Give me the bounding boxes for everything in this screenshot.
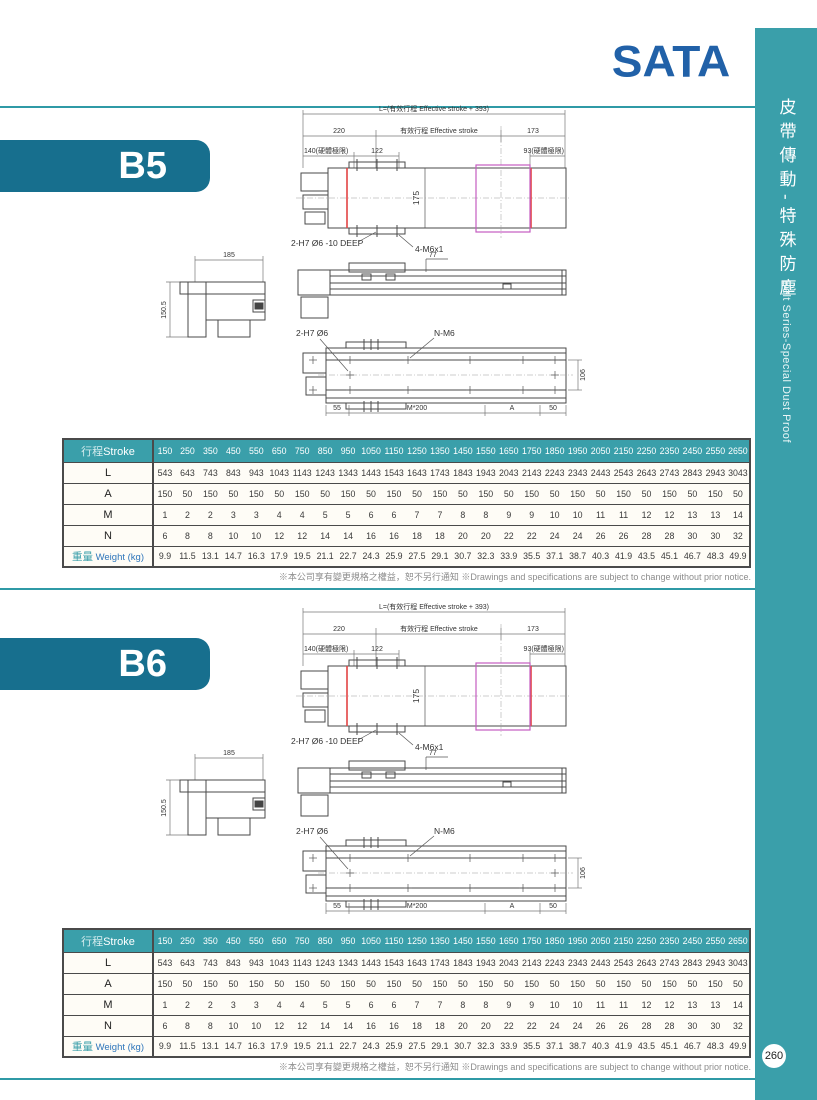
spec-value-cell: 1043 xyxy=(268,462,291,483)
spec-value-cell: 150 xyxy=(704,483,727,504)
spec-value-cell: 50 xyxy=(405,483,428,504)
spec-value-cell: 2 xyxy=(199,504,222,525)
page-number: 260 xyxy=(765,1050,783,1062)
spec-value-cell: 40.3 xyxy=(589,1036,612,1057)
spec-value-cell: 11 xyxy=(612,504,635,525)
spec-value-cell: 37.1 xyxy=(543,546,566,567)
spec-value-cell: 8 xyxy=(451,504,474,525)
row-label: M xyxy=(63,994,153,1015)
spec-value-cell: 8 xyxy=(199,1015,222,1036)
dim-label-50: 50 xyxy=(549,903,557,910)
dim-label-185: 185 xyxy=(223,750,235,757)
dim-label-effective-stroke: 有效行程 Effective stroke xyxy=(400,624,478,633)
stroke-value-cell: 1050 xyxy=(360,439,383,462)
spec-value-cell: 18 xyxy=(405,1015,428,1036)
spec-value-cell: 5 xyxy=(314,994,337,1015)
spec-value-cell: 50 xyxy=(681,973,704,994)
row-label: 重量 Weight (kg) xyxy=(63,546,153,567)
spec-value-cell: 8 xyxy=(451,994,474,1015)
stroke-header-label: 行程Stroke xyxy=(63,929,153,952)
spec-value-cell: 150 xyxy=(658,483,681,504)
stroke-header-label: 行程Stroke xyxy=(63,439,153,462)
spec-value-cell: 150 xyxy=(612,483,635,504)
dim-label-A: A xyxy=(510,405,515,412)
spec-value-cell: 1243 xyxy=(314,462,337,483)
spec-value-cell: 12 xyxy=(635,504,658,525)
spec-value-cell: 150 xyxy=(474,483,497,504)
spec-value-cell: 50 xyxy=(360,483,383,504)
spec-value-cell: 150 xyxy=(199,483,222,504)
spec-value-cell: 4 xyxy=(291,504,314,525)
spec-value-cell: 16.3 xyxy=(245,546,268,567)
row-label: A xyxy=(63,973,153,994)
spec-value-cell: 33.9 xyxy=(497,1036,520,1057)
bottom-view-annotations: 2-H7 Ø6 N-M6 106 xyxy=(296,328,587,390)
spec-value-cell: 6 xyxy=(383,504,406,525)
spec-value-cell: 2243 xyxy=(543,462,566,483)
stroke-value-cell: 1650 xyxy=(497,929,520,952)
spec-value-cell: 50 xyxy=(543,483,566,504)
spec-value-cell: 17.9 xyxy=(268,546,291,567)
dim-label-effective-stroke: 有效行程 Effective stroke xyxy=(400,126,478,135)
dim-label-55: 55 xyxy=(333,405,341,412)
top-view-dimensions: L=(有效行程 Effective stroke + 393) 220 有效行程… xyxy=(303,104,565,168)
dim-label-93: 93(硬體極限) xyxy=(524,644,564,653)
spec-value-cell: 16 xyxy=(383,525,406,546)
spec-value-cell: 50 xyxy=(727,973,750,994)
spec-value-cell: 1043 xyxy=(268,952,291,973)
spec-value-cell: 16 xyxy=(360,525,383,546)
spec-value-cell: 150 xyxy=(199,973,222,994)
spec-value-cell: 32.3 xyxy=(474,546,497,567)
dim-label-106: 106 xyxy=(580,867,587,879)
stroke-value-cell: 1650 xyxy=(497,439,520,462)
spec-value-cell: 543 xyxy=(153,462,176,483)
spec-value-cell: 150 xyxy=(337,973,360,994)
spec-value-cell: 150 xyxy=(337,483,360,504)
stroke-value-cell: 750 xyxy=(291,439,314,462)
spec-value-cell: 2043 xyxy=(497,952,520,973)
spec-row: 重量 Weight (kg)9.911.513.114.716.317.919.… xyxy=(63,546,750,567)
spec-value-cell: 2943 xyxy=(704,462,727,483)
dim-label-175: 175 xyxy=(411,191,421,205)
top-view-annotations: 2-H7 Ø6 -10 DEEP 4-M6x1 77 xyxy=(291,730,448,770)
top-view-annotations: 2-H7 Ø6 -10 DEEP 4-M6x1 77 xyxy=(291,232,448,272)
spec-value-cell: 150 xyxy=(291,483,314,504)
dim-label-93: 93(硬體極限) xyxy=(524,146,564,155)
spec-value-cell: 3 xyxy=(245,504,268,525)
stroke-label-en: Stroke xyxy=(103,446,135,458)
spec-value-cell: 22.7 xyxy=(337,546,360,567)
spec-row: 重量 Weight (kg)9.911.513.114.716.317.919.… xyxy=(63,1036,750,1057)
spec-value-cell: 16 xyxy=(360,1015,383,1036)
spec-value-cell: 30 xyxy=(681,1015,704,1036)
spec-value-cell: 150 xyxy=(658,973,681,994)
spec-value-cell: 9 xyxy=(497,994,520,1015)
spec-value-cell: 10 xyxy=(222,525,245,546)
spec-row: M12233445566778899101011111212131314 xyxy=(63,504,750,525)
spec-value-cell: 27.5 xyxy=(405,546,428,567)
stroke-value-cell: 2350 xyxy=(658,439,681,462)
spec-value-cell: 150 xyxy=(153,973,176,994)
spec-value-cell: 9 xyxy=(497,504,520,525)
spec-row: L543643743843943104311431243134314431543… xyxy=(63,952,750,973)
spec-value-cell: 150 xyxy=(383,483,406,504)
spec-value-cell: 7 xyxy=(428,994,451,1015)
spec-value-cell: 3 xyxy=(245,994,268,1015)
dim-label-50: 50 xyxy=(549,405,557,412)
spec-value-cell: 843 xyxy=(222,952,245,973)
stroke-value-cell: 1450 xyxy=(451,929,474,952)
thread-callout-bottom: N-M6 xyxy=(434,826,455,836)
spec-value-cell: 46.7 xyxy=(681,1036,704,1057)
bottom-view-bottom-dimensions: 55 M*200 A 50 xyxy=(326,405,566,416)
spec-value-cell: 11 xyxy=(612,994,635,1015)
dim-label-150-5: 150.5 xyxy=(161,799,168,817)
spec-value-cell: 10 xyxy=(543,504,566,525)
spec-value-cell: 18 xyxy=(428,525,451,546)
dim-label-m200: M*200 xyxy=(407,405,427,412)
spec-value-cell: 843 xyxy=(222,462,245,483)
dim-label-106: 106 xyxy=(580,369,587,381)
stroke-value-cell: 2650 xyxy=(727,929,750,952)
spec-value-cell: 1 xyxy=(153,504,176,525)
disclaimer-en: ※Drawings and specifications are subject… xyxy=(461,572,751,582)
spec-value-cell: 9.9 xyxy=(153,1036,176,1057)
stroke-limit-marks xyxy=(347,165,531,232)
top-view xyxy=(296,624,570,736)
spec-value-cell: 45.1 xyxy=(658,546,681,567)
dim-label-173: 173 xyxy=(527,128,539,135)
side-elevation-view xyxy=(298,761,566,816)
dim-label-185: 185 xyxy=(223,252,235,259)
stroke-value-cell: 250 xyxy=(176,439,199,462)
footer-divider xyxy=(0,1078,755,1080)
spec-value-cell: 543 xyxy=(153,952,176,973)
spec-value-cell: 50 xyxy=(360,973,383,994)
spec-value-cell: 2443 xyxy=(589,462,612,483)
spec-value-cell: 50 xyxy=(451,973,474,994)
spec-value-cell: 4 xyxy=(291,994,314,1015)
spec-value-cell: 40.3 xyxy=(589,546,612,567)
spec-value-cell: 50 xyxy=(635,973,658,994)
spec-value-cell: 12 xyxy=(635,994,658,1015)
spec-value-cell: 5 xyxy=(337,994,360,1015)
spec-value-cell: 43.5 xyxy=(635,546,658,567)
spec-row: M12233445566778899101011111212131314 xyxy=(63,994,750,1015)
spec-value-cell: 11.5 xyxy=(176,546,199,567)
stroke-value-cell: 2650 xyxy=(727,439,750,462)
spec-value-cell: 6 xyxy=(153,1015,176,1036)
stroke-value-cell: 850 xyxy=(314,929,337,952)
spec-value-cell: 12 xyxy=(268,525,291,546)
spec-value-cell: 1943 xyxy=(474,952,497,973)
bottom-view-annotations: 2-H7 Ø6 N-M6 106 xyxy=(296,826,587,888)
stroke-limit-marks xyxy=(347,663,531,730)
spec-value-cell: 22 xyxy=(497,1015,520,1036)
spec-value-cell: 18 xyxy=(428,1015,451,1036)
spec-value-cell: 19.5 xyxy=(291,1036,314,1057)
cross-section-view: 185 150.5 xyxy=(161,252,265,337)
spec-value-cell: 33.9 xyxy=(497,546,520,567)
stroke-value-cell: 550 xyxy=(245,929,268,952)
spec-value-cell: 28 xyxy=(658,1015,681,1036)
spec-value-cell: 943 xyxy=(245,462,268,483)
spec-value-cell: 1443 xyxy=(360,462,383,483)
spec-value-cell: 22.7 xyxy=(337,1036,360,1057)
spec-value-cell: 22 xyxy=(520,525,543,546)
stroke-header-row: 行程Stroke15025035045055065075085095010501… xyxy=(63,439,750,462)
side-elevation-view xyxy=(298,263,566,318)
spec-value-cell: 38.7 xyxy=(566,1036,589,1057)
spec-value-cell: 50 xyxy=(176,483,199,504)
spec-value-cell: 38.7 xyxy=(566,546,589,567)
stroke-value-cell: 1250 xyxy=(405,439,428,462)
spec-value-cell: 50 xyxy=(314,483,337,504)
spec-row: A150501505015050150501505015050150501505… xyxy=(63,973,750,994)
spec-value-cell: 11 xyxy=(589,504,612,525)
spec-row: N688101012121414161618182020222224242626… xyxy=(63,1015,750,1036)
spec-value-cell: 14 xyxy=(727,504,750,525)
spec-value-cell: 48.3 xyxy=(704,546,727,567)
spec-value-cell: 2443 xyxy=(589,952,612,973)
spec-value-cell: 50 xyxy=(497,483,520,504)
disclaimer-zh: ※本公司享有變更規格之權益，恕不另行通知 xyxy=(279,1062,459,1072)
spec-value-cell: 2543 xyxy=(612,952,635,973)
top-view-dimensions: L=(有效行程 Effective stroke + 393) 220 有效行程… xyxy=(303,602,565,666)
stroke-value-cell: 2550 xyxy=(704,929,727,952)
dim-label-220: 220 xyxy=(333,626,345,633)
stroke-value-cell: 2250 xyxy=(635,929,658,952)
sidebar: 皮帶傳動-特殊防塵 Belt Series-Special Dust Proof… xyxy=(755,28,817,1100)
dim-label-122: 122 xyxy=(371,148,383,155)
spec-value-cell: 2143 xyxy=(520,462,543,483)
spec-value-cell: 43.5 xyxy=(635,1036,658,1057)
top-view xyxy=(296,126,570,238)
dim-label-140: 140(硬體極限) xyxy=(304,644,348,653)
disclaimer-en: ※Drawings and specifications are subject… xyxy=(461,1062,751,1072)
stroke-value-cell: 150 xyxy=(153,929,176,952)
stroke-value-cell: 2250 xyxy=(635,439,658,462)
stroke-value-cell: 2450 xyxy=(681,439,704,462)
spec-value-cell: 2 xyxy=(199,994,222,1015)
spec-value-cell: 1443 xyxy=(360,952,383,973)
spec-value-cell: 150 xyxy=(245,973,268,994)
spec-value-cell: 14.7 xyxy=(222,1036,245,1057)
stroke-value-cell: 650 xyxy=(268,439,291,462)
thread-callout-bottom: N-M6 xyxy=(434,328,455,338)
stroke-value-cell: 1150 xyxy=(383,439,406,462)
spec-value-cell: 26 xyxy=(612,525,635,546)
row-label-zh: 重量 xyxy=(72,1041,93,1053)
stroke-value-cell: 150 xyxy=(153,439,176,462)
spec-value-cell: 46.7 xyxy=(681,546,704,567)
spec-value-cell: 1743 xyxy=(428,952,451,973)
spec-value-cell: 32 xyxy=(727,525,750,546)
spec-value-cell: 3043 xyxy=(727,462,750,483)
spec-value-cell: 24.3 xyxy=(360,546,383,567)
spec-value-cell: 50 xyxy=(405,973,428,994)
spec-value-cell: 6 xyxy=(383,994,406,1015)
spec-row: N688101012121414161618182020222224242626… xyxy=(63,525,750,546)
stroke-header-row: 行程Stroke15025035045055065075085095010501… xyxy=(63,929,750,952)
spec-value-cell: 150 xyxy=(566,483,589,504)
dim-label-175: 175 xyxy=(411,689,421,703)
stroke-value-cell: 1550 xyxy=(474,929,497,952)
spec-value-cell: 1343 xyxy=(337,952,360,973)
spec-value-cell: 28 xyxy=(658,525,681,546)
spec-value-cell: 30 xyxy=(681,525,704,546)
dim-label-A: A xyxy=(510,903,515,910)
spec-value-cell: 24 xyxy=(543,525,566,546)
spec-value-cell: 150 xyxy=(245,483,268,504)
hole-callout-bottom: 2-H7 Ø6 xyxy=(296,328,328,338)
stroke-value-cell: 1350 xyxy=(428,929,451,952)
spec-value-cell: 50 xyxy=(727,483,750,504)
spec-value-cell: 12 xyxy=(291,1015,314,1036)
spec-value-cell: 20 xyxy=(474,1015,497,1036)
spec-value-cell: 21.1 xyxy=(314,546,337,567)
spec-value-cell: 1343 xyxy=(337,462,360,483)
spec-value-cell: 2943 xyxy=(704,952,727,973)
spec-value-cell: 150 xyxy=(520,973,543,994)
dim-label-L: L=(有效行程 Effective stroke + 393) xyxy=(379,104,489,113)
page-number-badge: 260 xyxy=(762,1044,786,1068)
stroke-value-cell: 950 xyxy=(337,929,360,952)
bottom-view xyxy=(303,837,573,910)
stroke-value-cell: 250 xyxy=(176,929,199,952)
spec-value-cell: 10 xyxy=(245,525,268,546)
spec-row: A150501505015050150501505015050150501505… xyxy=(63,483,750,504)
stroke-value-cell: 350 xyxy=(199,929,222,952)
dim-label-77: 77 xyxy=(429,750,437,757)
spec-value-cell: 37.1 xyxy=(543,1036,566,1057)
technical-drawing-b5: L=(有效行程 Effective stroke + 393) 220 有效行程… xyxy=(158,98,610,438)
spec-value-cell: 6 xyxy=(360,994,383,1015)
spec-value-cell: 50 xyxy=(635,483,658,504)
spec-value-cell: 150 xyxy=(704,973,727,994)
stroke-value-cell: 1050 xyxy=(360,929,383,952)
spec-value-cell: 50 xyxy=(589,483,612,504)
disclaimer-zh: ※本公司享有變更規格之權益，恕不另行通知 xyxy=(279,572,459,582)
bottom-view-bottom-dimensions: 55 M*200 A 50 xyxy=(326,903,566,914)
spec-value-cell: 28 xyxy=(635,1015,658,1036)
spec-value-cell: 27.5 xyxy=(405,1036,428,1057)
spec-value-cell: 20 xyxy=(474,525,497,546)
spec-value-cell: 10 xyxy=(245,1015,268,1036)
spec-value-cell: 16.3 xyxy=(245,1036,268,1057)
spec-value-cell: 150 xyxy=(291,973,314,994)
spec-value-cell: 5 xyxy=(337,504,360,525)
spec-value-cell: 4 xyxy=(268,504,291,525)
spec-value-cell: 2543 xyxy=(612,462,635,483)
spec-value-cell: 150 xyxy=(428,973,451,994)
spec-value-cell: 2643 xyxy=(635,952,658,973)
spec-value-cell: 48.3 xyxy=(704,1036,727,1057)
spec-value-cell: 5 xyxy=(314,504,337,525)
spec-value-cell: 2 xyxy=(176,504,199,525)
spec-value-cell: 35.5 xyxy=(520,1036,543,1057)
row-label: 重量 Weight (kg) xyxy=(63,1036,153,1057)
spec-value-cell: 10 xyxy=(543,994,566,1015)
stroke-value-cell: 1250 xyxy=(405,929,428,952)
spec-value-cell: 30 xyxy=(704,525,727,546)
dim-label-220: 220 xyxy=(333,128,345,135)
spec-value-cell: 12 xyxy=(291,525,314,546)
spec-value-cell: 41.9 xyxy=(612,1036,635,1057)
spec-value-cell: 32.3 xyxy=(474,1036,497,1057)
spec-value-cell: 1843 xyxy=(451,462,474,483)
spec-value-cell: 8 xyxy=(474,504,497,525)
dim-label-140: 140(硬體極限) xyxy=(304,146,348,155)
spec-value-cell: 50 xyxy=(268,973,291,994)
stroke-value-cell: 1850 xyxy=(543,439,566,462)
row-label: N xyxy=(63,1015,153,1036)
spec-row: L543643743843943104311431243134314431543… xyxy=(63,462,750,483)
dim-label-150-5: 150.5 xyxy=(161,301,168,319)
stroke-value-cell: 1450 xyxy=(451,439,474,462)
spec-value-cell: 943 xyxy=(245,952,268,973)
row-label-zh: 重量 xyxy=(72,551,93,563)
hole-callout-bottom: 2-H7 Ø6 xyxy=(296,826,328,836)
spec-value-cell: 1243 xyxy=(314,952,337,973)
stroke-value-cell: 450 xyxy=(222,929,245,952)
row-label: M xyxy=(63,504,153,525)
stroke-label-en: Stroke xyxy=(103,936,135,948)
spec-value-cell: 1143 xyxy=(291,462,314,483)
spec-value-cell: 2343 xyxy=(566,462,589,483)
spec-value-cell: 1 xyxy=(153,994,176,1015)
spec-value-cell: 1143 xyxy=(291,952,314,973)
row-label: L xyxy=(63,462,153,483)
spec-value-cell: 24 xyxy=(543,1015,566,1036)
spec-value-cell: 28 xyxy=(635,525,658,546)
spec-value-cell: 13 xyxy=(704,994,727,1015)
spec-value-cell: 3 xyxy=(222,504,245,525)
dim-label-m200: M*200 xyxy=(407,903,427,910)
spec-value-cell: 2743 xyxy=(658,952,681,973)
spec-value-cell: 2 xyxy=(176,994,199,1015)
spec-value-cell: 50 xyxy=(268,483,291,504)
spec-value-cell: 2843 xyxy=(681,462,704,483)
spec-value-cell: 643 xyxy=(176,462,199,483)
spec-value-cell: 13 xyxy=(681,504,704,525)
hole-callout-top: 2-H7 Ø6 -10 DEEP xyxy=(291,238,364,248)
spec-value-cell: 50 xyxy=(451,483,474,504)
spec-value-cell: 6 xyxy=(153,525,176,546)
spec-table-b6: 行程Stroke15025035045055065075085095010501… xyxy=(62,928,751,1058)
spec-value-cell: 150 xyxy=(428,483,451,504)
spec-value-cell: 3043 xyxy=(727,952,750,973)
spec-value-cell: 4 xyxy=(268,994,291,1015)
spec-value-cell: 2743 xyxy=(658,462,681,483)
spec-value-cell: 8 xyxy=(199,525,222,546)
stroke-value-cell: 1850 xyxy=(543,929,566,952)
spec-value-cell: 150 xyxy=(474,973,497,994)
spec-value-cell: 1643 xyxy=(405,462,428,483)
spec-value-cell: 22 xyxy=(497,525,520,546)
spec-value-cell: 29.1 xyxy=(428,546,451,567)
spec-value-cell: 7 xyxy=(428,504,451,525)
stroke-value-cell: 850 xyxy=(314,439,337,462)
stroke-value-cell: 1150 xyxy=(383,929,406,952)
spec-value-cell: 6 xyxy=(360,504,383,525)
disclaimer-note-b6: ※本公司享有變更規格之權益，恕不另行通知 ※Drawings and speci… xyxy=(62,1060,751,1073)
stroke-value-cell: 450 xyxy=(222,439,245,462)
spec-value-cell: 20 xyxy=(451,1015,474,1036)
spec-value-cell: 13.1 xyxy=(199,1036,222,1057)
spec-value-cell: 743 xyxy=(199,952,222,973)
